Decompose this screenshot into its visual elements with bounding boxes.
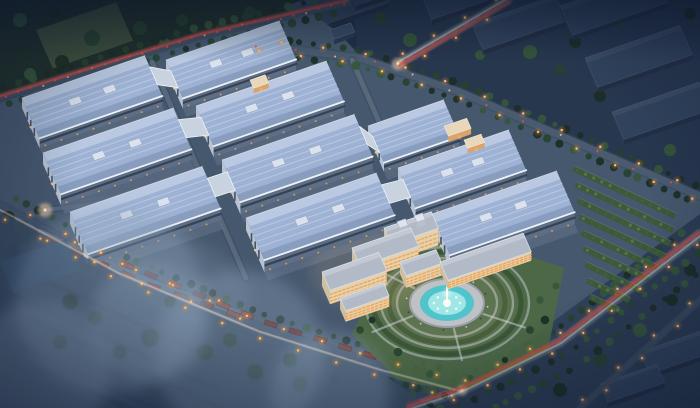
vignette-layer	[0, 0, 700, 408]
industrial-park-aerial-rendering	[0, 0, 700, 408]
aerial-render-canvas	[0, 0, 700, 408]
